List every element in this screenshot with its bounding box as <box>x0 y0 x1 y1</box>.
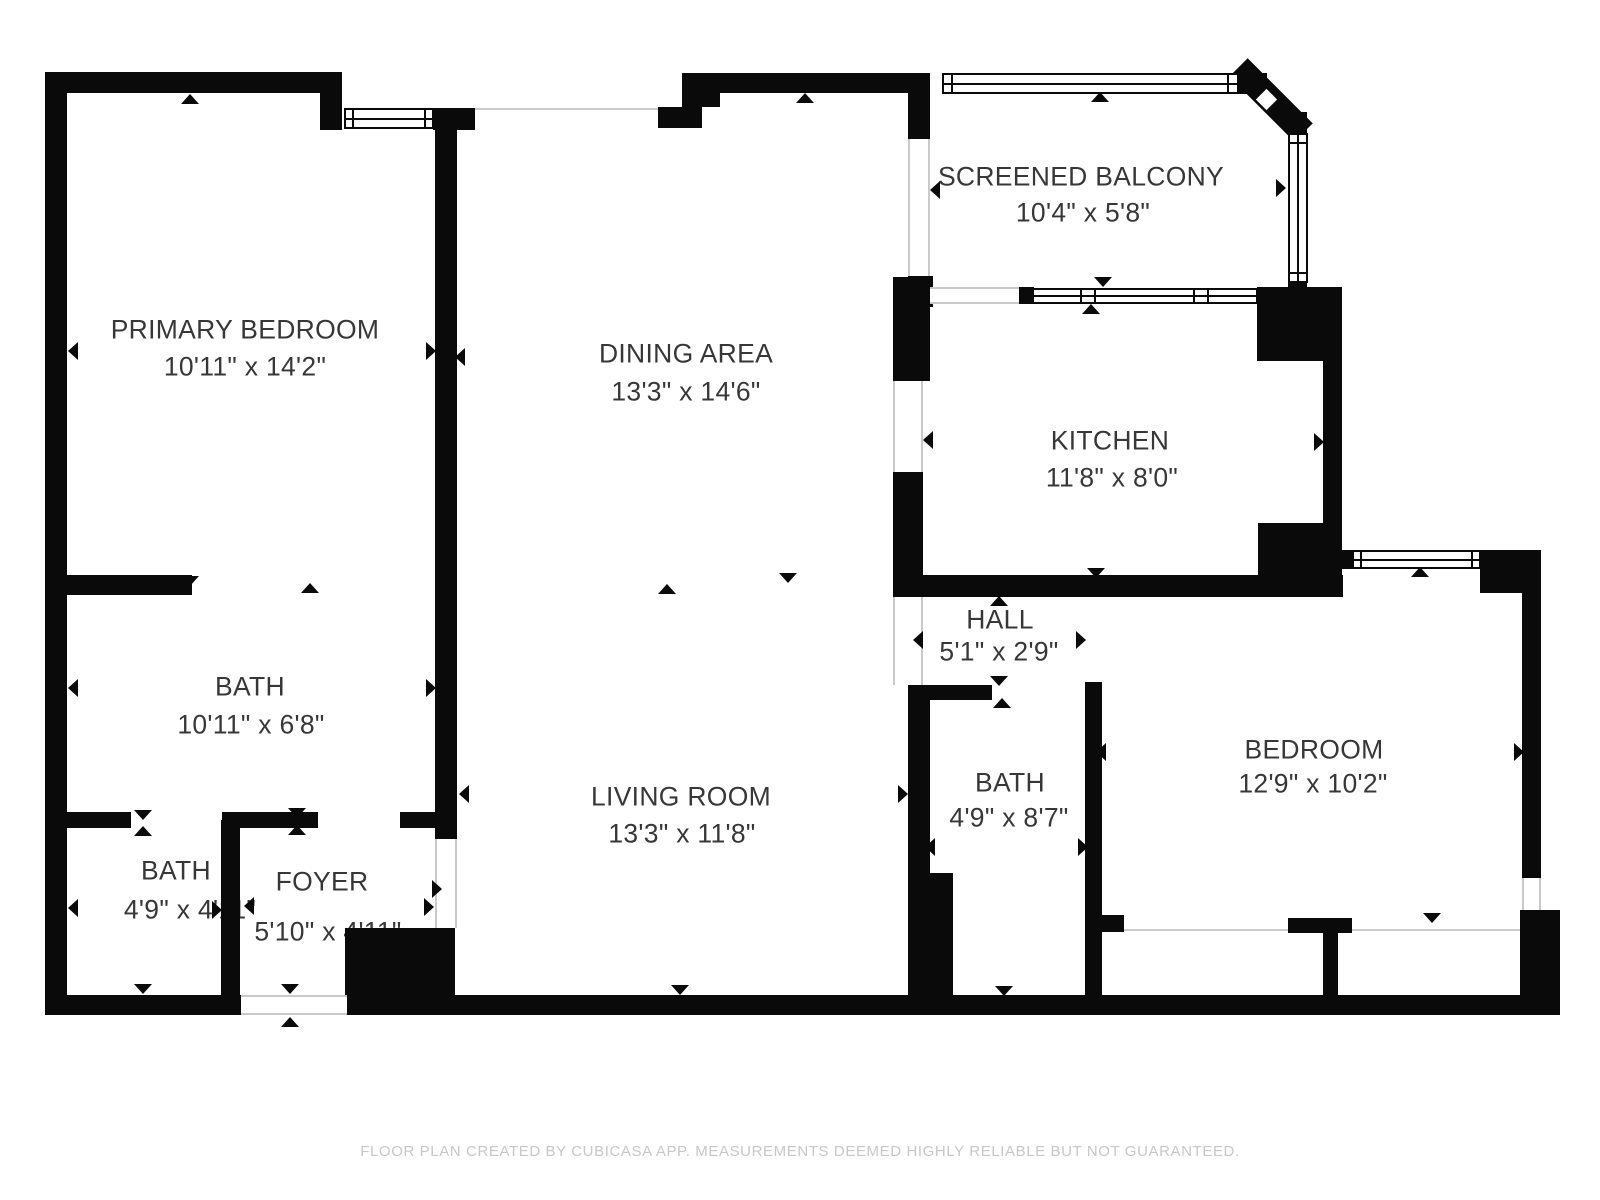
wall <box>67 575 192 595</box>
measure-arrow-down <box>1423 913 1441 923</box>
boundary-line <box>1122 929 1288 931</box>
wall <box>347 995 1560 1015</box>
measure-arrow-down <box>671 985 689 995</box>
measure-arrow-up <box>281 1017 299 1027</box>
measure-arrow-right <box>212 901 222 919</box>
wall <box>45 995 241 1015</box>
wall <box>682 73 720 107</box>
room-label-screened-balcony: SCREENED BALCONY <box>938 162 1224 193</box>
window <box>942 73 1239 94</box>
room-label-foyer: FOYER <box>276 867 369 898</box>
measure-arrow-down <box>181 576 199 586</box>
entry-door-opening <box>241 995 347 1015</box>
room-label-bedroom: BEDROOM <box>1244 735 1383 766</box>
room-label-kitchen: KITCHEN <box>1051 426 1169 457</box>
measure-arrow-down <box>779 573 797 583</box>
room-label-dining-area: DINING AREA <box>599 339 773 370</box>
room-dims-primary-bedroom: 10'11" x 14'2" <box>164 352 326 383</box>
window <box>1288 133 1308 283</box>
measure-arrow-up <box>1091 92 1109 102</box>
measure-arrow-left <box>68 679 78 697</box>
measure-arrow-up <box>134 826 152 836</box>
room-label-living-room: LIVING ROOM <box>591 782 771 813</box>
measure-arrow-down <box>1094 277 1112 287</box>
wall <box>45 72 342 93</box>
measure-arrow-left <box>925 838 935 856</box>
window-sliding <box>1032 288 1258 304</box>
measure-arrow-left <box>455 348 465 366</box>
screen-opening <box>908 139 930 276</box>
wall <box>893 575 1343 597</box>
wall <box>700 73 930 93</box>
measure-arrow-up <box>990 596 1008 606</box>
measure-arrow-right <box>893 345 903 363</box>
measure-arrow-left <box>68 899 78 917</box>
measure-arrow-right <box>426 679 436 697</box>
measure-arrow-left <box>923 431 933 449</box>
measure-arrow-left <box>68 342 78 360</box>
room-label-bath-hall: BATH <box>975 768 1045 799</box>
wall <box>400 812 457 828</box>
boundary-line <box>475 108 658 110</box>
measure-arrow-right <box>432 880 442 898</box>
boundary-line <box>1352 929 1520 931</box>
measure-arrow-right <box>426 342 436 360</box>
wall <box>1257 287 1342 361</box>
wall <box>45 72 67 1015</box>
measure-arrow-down <box>995 986 1013 996</box>
measure-arrow-down <box>990 676 1008 686</box>
measure-arrow-right <box>1076 631 1086 649</box>
measure-arrow-right <box>424 898 434 916</box>
measure-arrow-up <box>181 94 199 104</box>
measure-arrow-down <box>134 984 152 994</box>
measure-arrow-up <box>993 698 1011 708</box>
wall <box>435 108 457 839</box>
room-dims-hall: 5'1" x 2'9" <box>939 637 1058 668</box>
measure-arrow-right <box>898 785 908 803</box>
wall <box>221 820 240 997</box>
room-label-bath-small: BATH <box>141 856 211 887</box>
room-dims-screened-balcony: 10'4" x 5'8" <box>1016 198 1150 229</box>
measure-arrow-up <box>301 583 319 593</box>
room-label-hall: HALL <box>966 605 1034 636</box>
measure-arrow-up <box>658 584 676 594</box>
footer-disclaimer: FLOOR PLAN CREATED BY CUBICASA APP. MEAS… <box>0 1143 1600 1160</box>
room-label-primary-bedroom: PRIMARY BEDROOM <box>111 315 380 346</box>
window-opening <box>1522 878 1541 910</box>
measure-arrow-up <box>288 825 306 835</box>
wall <box>1323 360 1342 524</box>
room-dims-bath-main: 10'11" x 6'8" <box>177 710 324 741</box>
measure-arrow-down <box>134 810 152 820</box>
measure-arrow-up <box>1082 304 1100 314</box>
measure-arrow-right <box>1078 838 1088 856</box>
room-dims-bath-hall: 4'9" x 8'7" <box>949 803 1068 834</box>
measure-arrow-left <box>459 785 469 803</box>
room-dims-living-room: 13'3" x 11'8" <box>608 819 755 850</box>
window <box>344 108 434 129</box>
wall <box>67 812 131 828</box>
wall <box>1522 550 1541 878</box>
wall <box>320 92 342 130</box>
wall <box>1323 933 1338 996</box>
room-dims-bedroom: 12'9" x 10'2" <box>1238 769 1387 800</box>
measure-arrow-up <box>796 93 814 103</box>
wall <box>908 873 953 997</box>
room-label-bath-main: BATH <box>215 672 285 703</box>
wall <box>1288 918 1352 933</box>
measure-arrow-left <box>930 181 940 199</box>
measure-arrow-right <box>1314 433 1324 451</box>
room-dims-dining-area: 13'3" x 14'6" <box>611 377 760 408</box>
room-dims-kitchen: 11'8" x 8'0" <box>1046 463 1178 494</box>
measure-arrow-down <box>281 984 299 994</box>
measure-arrow-left <box>1096 743 1106 761</box>
measure-arrow-left <box>244 897 254 915</box>
measure-arrow-right <box>1276 179 1286 197</box>
floor-plan: PRIMARY BEDROOM 10'11" x 14'2" DINING AR… <box>0 0 1600 1200</box>
measure-arrow-up <box>1411 567 1429 577</box>
wall <box>1102 915 1124 932</box>
measure-arrow-right <box>1514 743 1524 761</box>
opening <box>893 381 923 472</box>
measure-arrow-down <box>288 808 306 818</box>
wall <box>908 93 930 139</box>
measure-arrow-down <box>1087 568 1105 578</box>
measure-arrow-left <box>913 631 923 649</box>
screen-opening <box>930 287 1019 304</box>
wall <box>893 277 930 381</box>
wall <box>658 107 702 128</box>
